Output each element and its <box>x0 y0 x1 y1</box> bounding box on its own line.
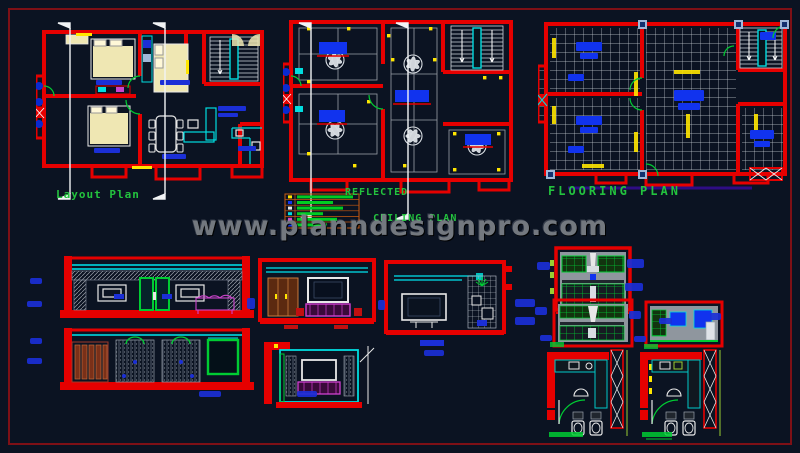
kpl2-label-illegible <box>642 432 672 437</box>
dimension-text-blob <box>424 350 444 356</box>
elevA-blue-note2 <box>162 294 172 299</box>
wall-elevation-svg <box>382 256 514 348</box>
layout-dining-table <box>149 116 183 152</box>
tv-unit-elevation-1-drawing <box>256 256 378 332</box>
tv1-stool-right <box>354 308 362 316</box>
elevB-right-post <box>242 328 250 384</box>
front-elevation-1-svg <box>58 252 256 322</box>
elevB-hatch-panels <box>116 337 200 382</box>
tv1-wardrobe <box>268 278 298 316</box>
dimension-text-blob <box>629 311 641 319</box>
ceiling-stairs <box>451 26 503 70</box>
kel2-counter <box>560 322 624 325</box>
kel3-door <box>706 322 715 340</box>
ceiling-wall-extensions <box>283 64 509 192</box>
floor-left-marker <box>538 94 547 106</box>
tv2-hatch-right <box>344 356 354 396</box>
kitchen-plan-2-drawing <box>638 348 724 440</box>
elevE-tab2 <box>504 284 512 290</box>
kel1-counter <box>562 280 624 283</box>
ceiling-fans <box>326 51 486 155</box>
kitchen-elev-2-svg <box>550 298 638 350</box>
kpl2-xtower <box>704 350 720 436</box>
kel2-label-illegible <box>550 342 564 347</box>
kitchen-plan-1-drawing <box>545 348 631 440</box>
dimension-text-blob <box>710 313 721 320</box>
elevA-base <box>60 310 254 318</box>
kpl1-label-illegible <box>549 432 583 437</box>
tv2-screen <box>302 360 336 380</box>
tv1-note1 <box>284 325 298 329</box>
kel2-base-door <box>588 328 596 338</box>
tv1-note2 <box>334 325 348 329</box>
ceiling-door-arcs <box>291 76 383 109</box>
tv-unit-1-svg <box>256 256 378 332</box>
ceiling-plan-title-line1: REFLECTED <box>345 187 408 198</box>
dimension-text-blob <box>659 318 672 324</box>
kpl1-basin <box>574 389 588 396</box>
dimension-text-blob <box>30 338 42 344</box>
tv2-yellow-dot <box>274 344 278 348</box>
dimension-text-blob <box>515 317 535 325</box>
kpl2-counters <box>652 360 700 408</box>
kitchen-elevation-2-drawing <box>550 298 638 350</box>
dimension-text-blob <box>297 391 317 397</box>
dimension-text-blob <box>634 336 646 342</box>
tv2-dimension <box>360 346 374 404</box>
watermark-text: www.planndesignpro.com <box>0 211 800 242</box>
front-elevation-2-svg <box>58 322 256 394</box>
tv2-hatch-left <box>286 356 296 396</box>
kitchen-elev-3-svg <box>644 300 726 350</box>
layout-plan-svg <box>36 20 274 208</box>
kel1-upper-left-grid <box>562 256 586 272</box>
dimension-text-blob <box>625 283 643 291</box>
flooring-plan-svg <box>538 16 793 208</box>
dimension-text-blob <box>515 299 535 307</box>
kpl1-fixtures <box>572 412 602 435</box>
front-elevation-1-drawing <box>58 252 256 322</box>
flooring-plan-drawing <box>538 16 793 208</box>
elevE-note <box>420 340 444 346</box>
tv1-screen <box>308 278 348 302</box>
tv1-base <box>260 318 374 324</box>
tv1-cabinet <box>306 304 350 316</box>
tv1-stool-left <box>296 308 304 316</box>
front-elevation-2-drawing <box>58 322 256 394</box>
dimension-text-blob <box>27 358 42 364</box>
layout-beds <box>66 35 188 146</box>
elevE-tab1 <box>504 266 512 272</box>
dimension-text-blob <box>535 307 547 315</box>
dimension-text-blob <box>30 278 42 284</box>
dimension-text-blob <box>378 300 385 310</box>
kitchen-plan-1-svg <box>545 348 631 440</box>
door-fan-2 <box>248 34 260 46</box>
dimension-text-blob <box>537 262 550 270</box>
elevB-green-window <box>208 338 238 374</box>
elevE-base <box>386 330 504 335</box>
dimension-text-blob <box>199 391 221 397</box>
elevE-grid-column <box>468 276 496 328</box>
dimension-text-blob <box>540 335 552 341</box>
kel1-upper-right-grid <box>598 256 624 272</box>
tv-unit-elevation-2-drawing <box>256 334 378 412</box>
elevB-louver-door <box>72 342 108 382</box>
flooring-plan-title: FLOORING PLAN <box>548 184 681 198</box>
elevB-base <box>60 382 254 390</box>
tv1-cyan-lines <box>266 268 368 272</box>
kitchen-plan-2-svg <box>638 348 724 440</box>
cad-sheet: Layout Plan <box>0 0 800 453</box>
kel1-left-accents <box>550 260 554 294</box>
layout-sofa <box>184 108 216 142</box>
kpl1-xtower <box>611 350 627 436</box>
elevA-pilaster-left <box>74 280 86 310</box>
tv-unit-2-svg <box>256 334 378 412</box>
kpl2-basin <box>667 389 681 396</box>
elevB-left-post <box>64 328 72 384</box>
dimension-text-blob <box>27 301 42 307</box>
elevA-blue-note1 <box>114 294 124 299</box>
wall-elevation-drawing <box>382 256 514 348</box>
kel3-blue-panel1 <box>670 312 686 326</box>
elevA-cyan-band <box>72 265 242 269</box>
elevE-shelf <box>394 276 478 280</box>
dimension-text-blob <box>247 298 255 309</box>
tv2-base <box>276 402 362 408</box>
elevA-left-post <box>64 256 72 312</box>
kitchen-elevation-3-drawing <box>644 300 726 350</box>
layout-plan-title: Layout Plan <box>56 188 140 201</box>
dimension-text-blob <box>627 259 644 268</box>
elevE-screen <box>402 294 446 328</box>
layout-plan-drawing <box>36 20 274 208</box>
door-fan-1 <box>232 34 244 46</box>
kpl2-fixtures <box>665 412 695 435</box>
